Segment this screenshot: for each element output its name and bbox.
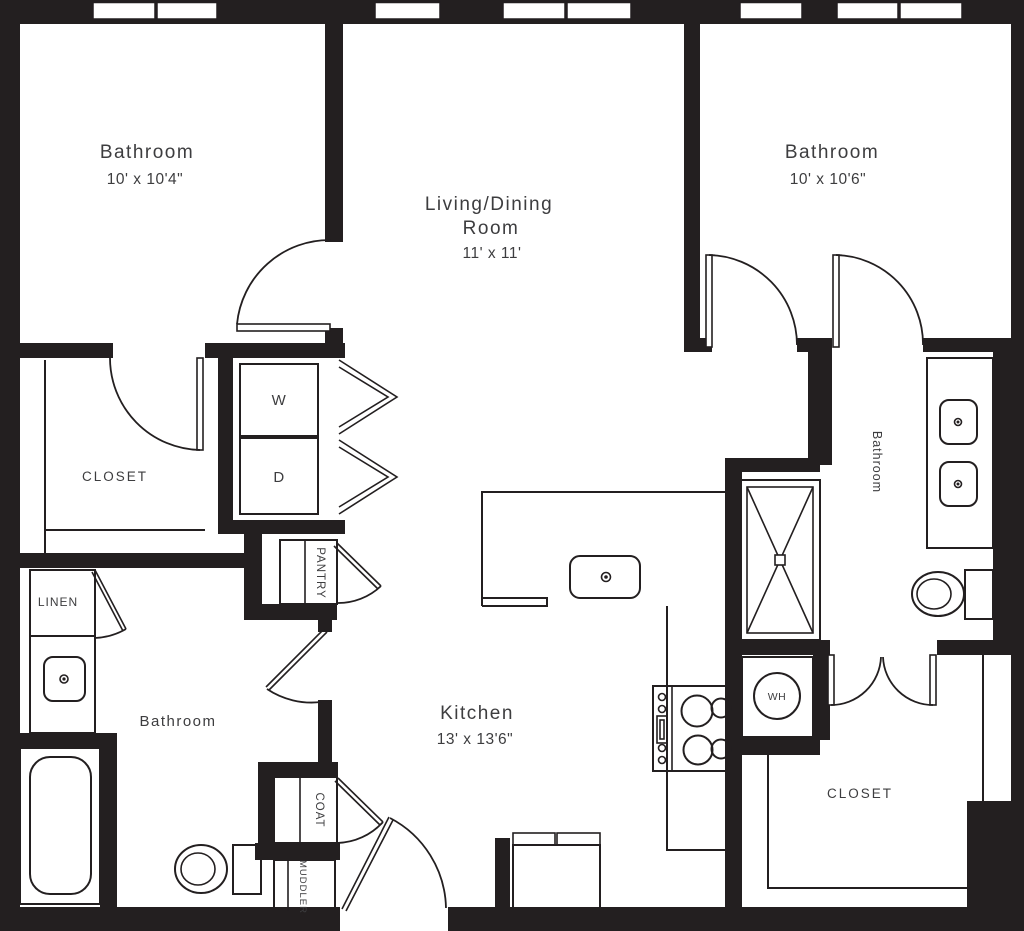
dryer-label: D [273,469,284,486]
door-bifold-dryer [339,440,397,514]
door-pantry [334,543,381,603]
bedroom-tr-dims: 10' x 10'6" [790,171,866,188]
kitchen-label: Kitchen [440,703,514,724]
bathtub [20,748,100,904]
door-closet-tl [110,358,203,450]
toilet-right [912,570,993,619]
living-label-line2: Room [463,218,520,239]
door-closet-br [828,655,936,705]
window-2 [157,3,217,20]
water-heater-label: WH [768,691,787,703]
window-5 [567,3,631,20]
kitchen-counter [482,492,725,850]
washer-label: W [272,392,287,409]
door-bathroom-left [266,629,327,703]
pantry-box [280,540,337,604]
fixtures [20,358,993,911]
closet-br-label: CLOSET [827,786,893,801]
shower [740,480,820,640]
floorplan-svg: Bathroom 10' x 10'4" Living/Dining Room … [0,0,1024,931]
floorplan-canvas: Bathroom 10' x 10'4" Living/Dining Room … [0,0,1024,931]
bathroom-right-label: Bathroom [870,431,884,493]
muddler-label: MUDDLER [297,860,308,914]
vanity-left [30,636,95,733]
coat-label: COAT [313,792,325,827]
window-7 [837,3,898,20]
bedroom-tl-label: Bathroom [100,142,194,163]
linen-label: LINEN [38,595,78,609]
stove [653,686,733,771]
window-3 [375,3,440,20]
living-dims: 11' x 11' [463,245,522,262]
pantry-label: PANTRY [314,547,326,599]
refrigerator [513,833,600,911]
bedroom-tl-dims: 10' x 10'4" [107,171,183,188]
living-label-line1: Living/Dining [425,194,553,215]
window-4 [503,3,565,20]
door-bedroom-tr [706,255,797,347]
door-bathroom-right [833,255,923,347]
toilet-left [175,845,261,894]
vanity-right [927,358,993,548]
door-coat [335,778,383,843]
window-1 [93,3,155,20]
bedroom-tr-label: Bathroom [785,142,879,163]
door-bedroom-tl [237,240,331,331]
kitchen-dims: 13' x 13'6" [437,731,513,748]
door-bifold-washer [339,360,397,434]
closet-tl-label: CLOSET [82,469,148,484]
closet-tl-shelves [45,360,205,558]
kitchen-sink [570,556,640,598]
door-entry [342,817,446,911]
window-8 [900,3,962,20]
door-linen [92,570,126,638]
window-6 [740,3,802,20]
bathroom-left-label: Bathroom [139,713,216,730]
coat-box [274,777,337,843]
closet-br-shelves [768,655,983,888]
